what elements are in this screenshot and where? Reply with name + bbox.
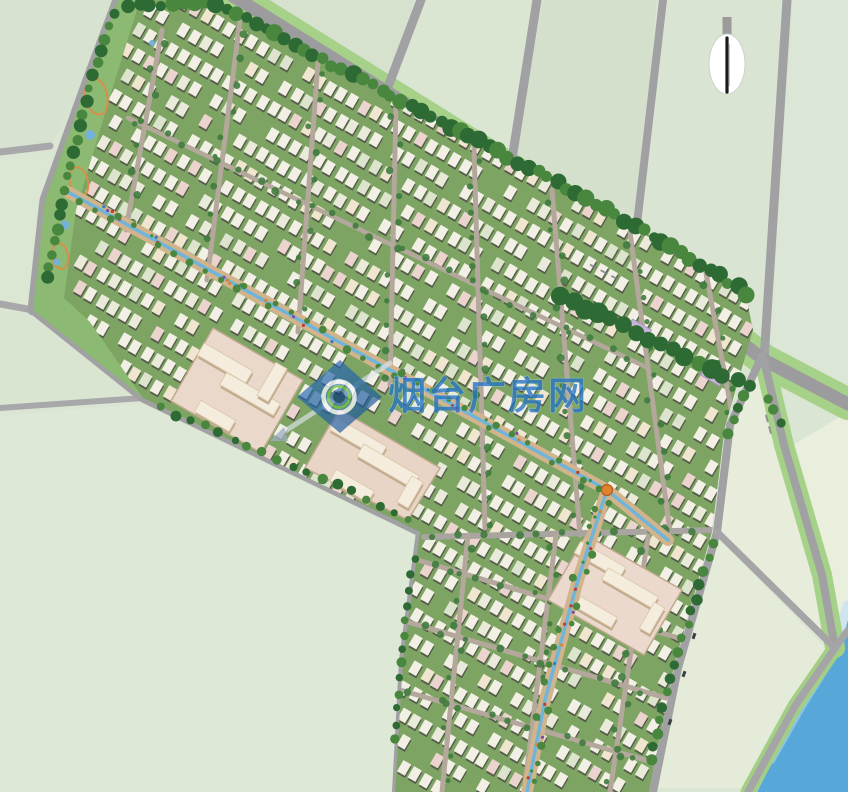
boulevard-speck bbox=[599, 510, 602, 513]
tree-icon bbox=[376, 502, 385, 511]
tree-icon bbox=[693, 579, 704, 590]
boulevard-speck bbox=[228, 282, 231, 285]
tree-icon bbox=[722, 428, 733, 439]
boulevard-speck bbox=[574, 588, 577, 591]
master-plan-map: 烟台广房网 bbox=[0, 0, 848, 792]
tree-icon bbox=[186, 416, 194, 424]
tree-icon bbox=[648, 742, 658, 752]
boulevard-speck bbox=[553, 662, 556, 665]
tree-icon bbox=[730, 415, 739, 424]
tree-icon bbox=[401, 616, 409, 624]
tree-icon bbox=[60, 186, 70, 196]
tree-icon bbox=[403, 602, 411, 610]
park-pond bbox=[54, 259, 61, 266]
tree-icon bbox=[686, 606, 696, 616]
tree-icon bbox=[393, 704, 400, 711]
tree-icon bbox=[302, 468, 310, 476]
tree-icon bbox=[368, 79, 379, 90]
tree-icon bbox=[424, 111, 436, 123]
tree-icon bbox=[356, 72, 369, 85]
tree-icon bbox=[406, 570, 414, 578]
boulevard-speck bbox=[572, 611, 575, 614]
boulevard-speck bbox=[226, 279, 229, 282]
tree-icon bbox=[347, 486, 356, 495]
tree-icon bbox=[121, 0, 135, 13]
boulevard-speck bbox=[581, 561, 584, 564]
tree-icon bbox=[99, 34, 111, 46]
boulevard-speck bbox=[543, 703, 546, 706]
tree-icon bbox=[85, 84, 93, 92]
boulevard-speck bbox=[485, 418, 488, 421]
tree-icon bbox=[663, 688, 672, 697]
boulevard-speck bbox=[563, 623, 566, 626]
tree-icon bbox=[677, 634, 686, 643]
boulevard-speck bbox=[589, 479, 592, 482]
tree-icon bbox=[652, 729, 663, 740]
boulevard-speck bbox=[302, 324, 305, 327]
tree-icon bbox=[157, 403, 165, 411]
tree-icon bbox=[171, 411, 182, 422]
boulevard-plaza-node bbox=[602, 485, 613, 496]
tree-icon bbox=[673, 647, 684, 658]
boulevard-speck bbox=[569, 604, 572, 607]
tree-icon bbox=[305, 48, 319, 62]
tree-icon bbox=[74, 119, 87, 132]
tree-icon bbox=[318, 474, 328, 484]
tree-icon bbox=[685, 620, 693, 628]
tree-icon bbox=[289, 463, 297, 471]
boulevard-speck bbox=[515, 432, 518, 435]
boulevard-speck bbox=[589, 547, 592, 550]
tree-icon bbox=[391, 509, 398, 516]
tree-icon bbox=[73, 135, 84, 146]
boulevard-speck bbox=[593, 515, 596, 518]
boulevard-speck bbox=[264, 299, 267, 302]
tree-icon bbox=[777, 418, 786, 427]
tree-icon bbox=[81, 95, 94, 108]
boulevard-speck bbox=[541, 736, 544, 739]
tree-icon bbox=[43, 262, 53, 272]
boulevard-speck bbox=[292, 315, 295, 318]
tree-icon bbox=[714, 368, 730, 384]
tree-icon bbox=[110, 9, 120, 19]
boulevard-speck bbox=[576, 471, 579, 474]
tree-icon bbox=[709, 539, 719, 549]
tree-icon bbox=[698, 566, 709, 577]
tree-icon bbox=[768, 404, 778, 414]
watermark-text: 烟台广房网 bbox=[388, 376, 588, 418]
tree-icon bbox=[764, 394, 773, 403]
boulevard-speck bbox=[106, 209, 109, 212]
tree-icon bbox=[397, 657, 407, 667]
tree-icon bbox=[67, 146, 80, 159]
watermark-core bbox=[333, 391, 345, 403]
boulevard-speck bbox=[330, 340, 333, 343]
screenshot-root: 烟台广房网 bbox=[0, 0, 848, 792]
tree-icon bbox=[392, 94, 408, 110]
boulevard-speck bbox=[155, 236, 158, 239]
tree-icon bbox=[317, 52, 329, 64]
park-pond bbox=[149, 40, 155, 46]
tree-icon bbox=[731, 372, 746, 387]
tree-icon bbox=[395, 691, 404, 700]
tree-icon bbox=[77, 110, 88, 121]
tree-icon bbox=[393, 722, 401, 730]
tree-icon bbox=[66, 161, 75, 170]
tree-icon bbox=[52, 224, 64, 236]
boulevard-speck bbox=[102, 205, 105, 208]
tree-icon bbox=[272, 455, 282, 465]
tree-icon bbox=[675, 348, 694, 367]
tree-icon bbox=[398, 645, 406, 653]
tree-icon bbox=[232, 437, 239, 444]
tree-icon bbox=[47, 250, 57, 260]
tree-icon bbox=[738, 287, 755, 304]
tree-icon bbox=[541, 171, 552, 182]
tree-icon bbox=[400, 632, 408, 640]
tree-icon bbox=[41, 271, 54, 284]
tree-icon bbox=[242, 442, 251, 451]
boulevard-speck bbox=[111, 210, 114, 213]
tree-icon bbox=[396, 674, 403, 681]
tree-icon bbox=[665, 674, 676, 685]
tree-icon bbox=[229, 6, 244, 21]
tree-icon bbox=[213, 427, 223, 437]
park-pond bbox=[85, 130, 95, 140]
tree-icon bbox=[390, 734, 399, 743]
tree-icon bbox=[412, 555, 420, 563]
tree-icon bbox=[405, 516, 412, 523]
tree-icon bbox=[362, 496, 370, 504]
tree-icon bbox=[706, 554, 714, 562]
tree-icon bbox=[332, 479, 343, 490]
boulevard-speck bbox=[530, 769, 533, 772]
tree-icon bbox=[405, 587, 413, 595]
tree-icon bbox=[156, 1, 166, 11]
tree-icon bbox=[105, 22, 114, 31]
tree-icon bbox=[691, 594, 702, 605]
tree-icon bbox=[95, 45, 108, 58]
tree-icon bbox=[638, 223, 650, 235]
tree-icon bbox=[201, 420, 210, 429]
boulevard-speck bbox=[150, 234, 153, 237]
tree-icon bbox=[670, 660, 679, 669]
boulevard-speck bbox=[527, 776, 530, 779]
tree-icon bbox=[646, 754, 657, 765]
tree-icon bbox=[86, 69, 99, 82]
tree-icon bbox=[50, 236, 60, 246]
tree-icon bbox=[56, 198, 68, 210]
tree-icon bbox=[744, 380, 756, 392]
boulevard-speck bbox=[586, 542, 589, 545]
tree-icon bbox=[277, 32, 290, 45]
boulevard-speck bbox=[560, 643, 563, 646]
tree-icon bbox=[655, 716, 663, 724]
tree-icon bbox=[657, 702, 668, 713]
tree-icon bbox=[63, 172, 71, 180]
tree-icon bbox=[257, 447, 266, 456]
tree-icon bbox=[738, 390, 749, 401]
tree-icon bbox=[733, 403, 743, 413]
boulevard-speck bbox=[517, 438, 520, 441]
tree-icon bbox=[54, 209, 66, 221]
tree-icon bbox=[93, 57, 104, 68]
